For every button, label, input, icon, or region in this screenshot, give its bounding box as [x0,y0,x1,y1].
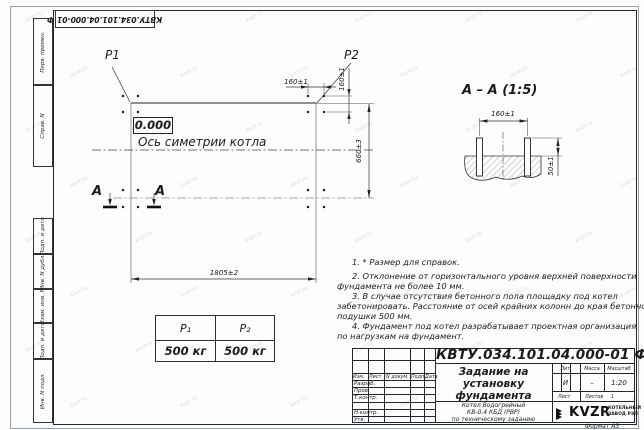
tb-hline [352,360,435,361]
dim-bolt-spacing-horizontal: 160±1 [284,78,308,86]
dim-bolt-spacing-vertical: 160±1 [338,66,346,92]
company-sub-line-2: ЗАВОД РЭП [608,412,638,417]
load-table-value-p1: 500 кг [156,341,216,361]
kvzr-logo-icon [555,405,568,424]
tb-col-list: Лист [369,374,381,380]
tb-row-prov: Пров. [354,388,370,394]
load-point-p1-label: P1 [105,48,120,62]
elevation-mark: 0.000 [133,117,173,134]
tb-sheet-label: Лист [558,394,570,400]
note-line-1: 1. * Размер для справок. [337,257,644,267]
tb-scale-label: Масштаб [604,366,634,372]
dim-height-660: 660±3 [355,137,363,165]
tb-col-data: Дата [425,374,438,380]
load-table-header-p2: P₂ [216,316,274,341]
section-letter-right: А [155,184,165,199]
doc-title-line-2: установку [437,378,550,390]
note-line-7: 4. Фундамент под котел разрабатывает про… [337,321,644,331]
section-letter-left: А [92,184,102,199]
tb-lit-label: Лит. [552,366,580,372]
doc-subtitle-line-3: по техническому заданию [437,416,550,423]
tb-hline [552,373,635,374]
drawing-sheet: kvzr.rukvzr.rukvzr.rukvzr.rukvzr.rukvzr.… [0,0,644,430]
document-designation: КВТУ.034.101.04.000-01 Ф [436,348,635,363]
tb-col-izm: Изм. [353,374,365,380]
note-line-8: по нагрузкам на фундамент. [337,331,639,341]
tb-mass-value: – [580,379,604,387]
doc-subtitle-line-1: Котел Водогрейный [437,402,550,409]
doc-subtitle-line-2: КВ-0,4 КБД (РВР) [437,409,550,416]
load-table-header-p1: P₁ [156,316,216,341]
tb-hline [435,363,635,364]
note-line-3: фундамента не более 10 мм. [337,281,639,291]
tb-lit-value: И [561,379,570,387]
boiler-axis-label: Ось симетрии котла [138,135,266,149]
tb-col-ndocum: N докум. [386,374,409,380]
tb-mass-label: Масса [580,366,604,372]
format-note: Формат А3 [585,423,619,430]
dim-bolt-protrusion: 50±1 [547,155,555,177]
tb-hline [352,402,435,403]
tb-vline [552,363,553,423]
tb-row-nkontr: Н.контр. [354,410,378,416]
tb-row-razrab: Разраб. [354,381,375,387]
tb-hline [552,391,635,392]
load-point-p2-label: P2 [344,48,359,62]
tb-sheets-value: 1 [611,394,614,400]
note-line-2: 2. Отклонение от горизонтального уровня … [337,271,644,281]
load-table: P₁ P₂ 500 кг 500 кг [155,315,275,362]
tb-row-utv: Утв. [354,417,365,423]
tb-col-podp: Подп. [411,374,426,380]
tb-row-tkontr: Т.контр. [354,395,377,401]
tb-sheets-label: Листов [585,394,603,400]
load-table-value-p2: 500 кг [216,341,274,361]
section-view-title: А – А (1:5) [462,83,546,98]
doc-title-line-1: Задание на [437,366,550,378]
doc-title-line-3: фундамента [437,390,550,402]
company-logo-text: KVZR [569,405,611,420]
note-line-5: забетонировать. Расстояние от осей крайн… [337,301,639,311]
tb-scale-value: 1:20 [604,379,634,387]
dim-width-1805: 1805±2 [207,269,241,277]
dim-section-bolt-spacing: 160±1 [491,110,515,118]
note-line-4: 3. В случае отсутствия бетонного пола пл… [337,291,644,301]
tb-hline [552,401,635,402]
note-line-6: подушки 500 мм. [337,311,639,321]
company-sub-line-1: КОТЕЛЬНЫЙ [608,406,641,411]
